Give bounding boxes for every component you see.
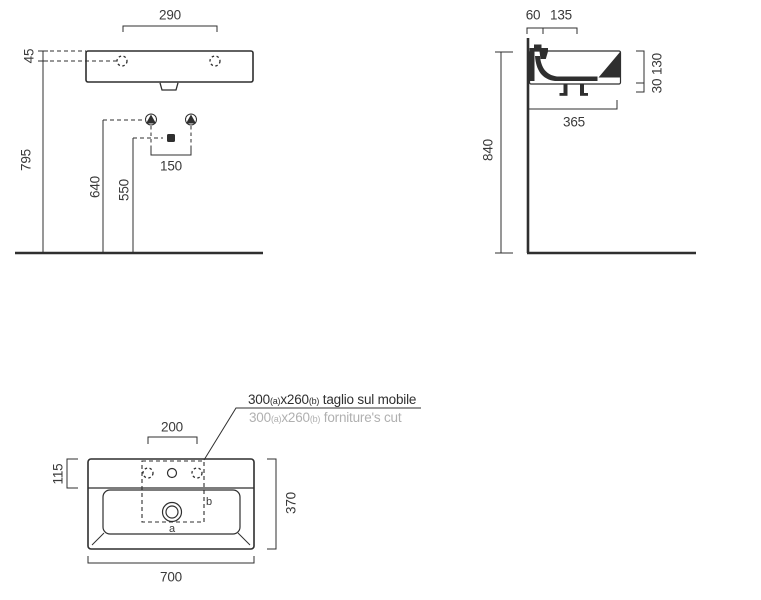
dim-290-bracket [123,26,217,32]
dim-135-label: 135 [550,8,572,23]
dim-115-label: 115 [51,464,66,485]
dim-700-bracket [88,556,254,563]
dim-365-label: 365 [563,115,585,130]
basin-top-outline [88,459,254,549]
basin-section-solid [530,45,621,96]
front-view [15,26,263,253]
dim-370-bracket [267,459,276,549]
dim-550-label: 550 [117,179,132,201]
dim-30-label: 30 [650,79,665,94]
drain-tab-outline [160,83,178,90]
water-supply-icon [146,114,157,125]
dim-290-label: 290 [159,8,181,23]
top-view [67,408,421,563]
dim-200-label: 200 [161,420,183,435]
dim-60-label: 60 [526,8,541,23]
corner-bevel-line [238,533,250,545]
tap-hole-icon [192,468,202,478]
dim-365-line [528,100,617,109]
dim-200-bracket [148,437,197,444]
dim-370-label: 370 [284,492,299,514]
dim-840-label: 840 [481,139,496,161]
side-view [495,28,696,253]
dim-150-bracket [151,146,191,155]
waste-outlet-icon [167,134,175,142]
tap-hole-icon [168,469,177,478]
furniture-cut-note-english: 300(a)x260(b) forniture's cut [249,410,401,425]
dim-795-label: 795 [19,149,34,171]
dim-840-bracket [495,52,513,253]
dim-640-label: 640 [88,176,103,198]
tap-hole-icon [117,56,127,66]
basin-front-outline [86,51,253,82]
dim-45-label: 45 [22,49,37,64]
dim-60-135-bracket [527,28,577,34]
dim-130-label: 130 [650,53,665,75]
corner-bevel-line [92,533,104,545]
furniture-cut-note-italian: 300(a)x260(b) taglio sul mobile [248,392,416,407]
dim-45-795-line [38,51,48,252]
dim-130-30-bracket [636,51,644,92]
dim-150-label: 150 [160,159,182,174]
cut-label-a: a [169,523,175,535]
tap-hole-icon [143,468,153,478]
tap-hole-icon [210,56,220,66]
dim-700-label: 700 [160,570,182,585]
drawing-linework [0,0,761,600]
drain-icon [163,503,182,522]
water-supply-icon [186,114,197,125]
technical-drawing-canvas: 290 45 795 640 550 150 60 135 130 30 840… [0,0,761,600]
cut-label-b: b [206,496,212,508]
dim-115-bracket [67,459,78,488]
